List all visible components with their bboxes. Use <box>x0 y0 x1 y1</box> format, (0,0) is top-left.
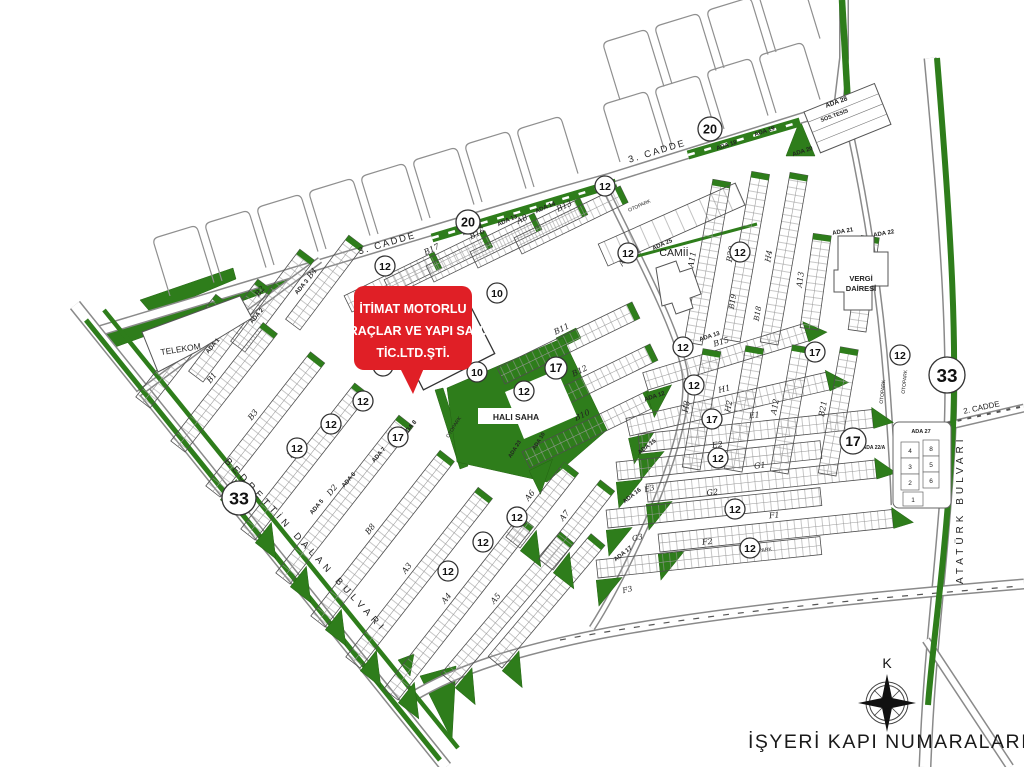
block-letter: G1 <box>754 461 766 471</box>
block-letter: F1 <box>768 510 781 520</box>
block-letter: F2 <box>701 537 714 547</box>
route-badge-12: 12 <box>321 414 341 434</box>
block-letter: H4 <box>763 249 774 263</box>
route-badge-number: 12 <box>677 342 689 354</box>
site-map: C2B2B4C1B1B3D1D2B8A3A4A5B14B17B16A8B13B1… <box>0 0 1024 767</box>
route-badge-number: 12 <box>894 350 906 362</box>
callout-text: TİC.LTD.ŞTİ. <box>376 345 449 360</box>
route-badge-12: 12 <box>890 345 910 365</box>
route-badge-17: 17 <box>388 427 408 447</box>
empty-parcel-comb <box>516 116 578 187</box>
route-badge-12: 12 <box>708 448 728 468</box>
route-badge-12: 12 <box>375 256 395 276</box>
ada27-cell-number: 8 <box>929 446 933 453</box>
block-letter: H1 <box>716 383 731 395</box>
empty-parcel-comb <box>654 13 716 84</box>
route-badge-12: 12 <box>684 375 704 395</box>
route-badge-12: 12 <box>287 438 307 458</box>
route-badge-number: 17 <box>809 347 821 359</box>
route-badge-number: 12 <box>599 181 611 193</box>
route-badge-20: 20 <box>698 117 722 141</box>
route-badge-17: 17 <box>545 357 567 379</box>
route-badge-number: 12 <box>622 248 634 260</box>
row-green-triangle <box>892 505 914 528</box>
highlight-callout: İTİMAT MOTORLUARAÇLAR VE YAPI SAN.TİC.LT… <box>340 286 487 394</box>
route-badge-10: 10 <box>487 283 507 303</box>
map-label: 3. CADDE <box>357 230 417 258</box>
route-badge-12: 12 <box>438 561 458 581</box>
route-badge-12: 12 <box>618 243 638 263</box>
route-badge-number: 12 <box>734 247 746 259</box>
route-badge-33: 33 <box>222 481 256 515</box>
map-label: ADA 27 <box>911 429 930 435</box>
empty-parcel-comb <box>204 210 266 281</box>
road-label-ataturk: ATATÜRK BULVARI <box>954 435 966 584</box>
empty-parcel-comb <box>360 163 422 234</box>
route-badge-12: 12 <box>740 538 760 558</box>
route-badge-12: 12 <box>507 507 527 527</box>
route-badge-number: 17 <box>550 363 563 375</box>
route-badge-number: 12 <box>379 261 391 273</box>
route-badge-17: 17 <box>840 428 866 454</box>
route-badge-number: 12 <box>744 543 756 555</box>
route-badge-number: 12 <box>729 504 741 516</box>
map-label: HALI SAHA <box>493 412 539 422</box>
ada27-cell-number: 4 <box>908 448 912 455</box>
route-badge-number: 20 <box>703 123 717 137</box>
empty-parcel-comb <box>706 0 768 68</box>
map-label: ADA 22 <box>873 229 895 239</box>
ada27-cell-number: 3 <box>908 464 912 471</box>
ada27-cell-number: 2 <box>908 480 912 487</box>
route-badge-number: 12 <box>511 512 523 524</box>
map-label: B18 <box>752 305 764 323</box>
route-badge-12: 12 <box>725 499 745 519</box>
callout-text: İTİMAT MOTORLU <box>359 301 466 316</box>
block-letter: G2 <box>706 487 718 497</box>
empty-parcel-comb <box>602 29 664 100</box>
route-badge-number: 33 <box>229 488 249 508</box>
empty-parcel-comb <box>758 0 820 52</box>
route-badge-12: 12 <box>514 381 534 401</box>
map-label: VERGİ <box>849 274 872 283</box>
route-badge-number: 10 <box>471 367 483 379</box>
empty-parcel-comb <box>256 194 318 265</box>
map-label: OTOPARK <box>901 369 910 394</box>
route-badge-12: 12 <box>353 391 373 411</box>
route-badge-17: 17 <box>805 342 825 362</box>
route-badge-number: 12 <box>477 537 489 549</box>
map-page: C2B2B4C1B1B3D1D2B8A3A4A5B14B17B16A8B13B1… <box>0 0 1024 767</box>
ada28-block <box>804 84 891 153</box>
ada27-cell-number: 5 <box>929 462 933 469</box>
route-badge-number: 12 <box>518 386 530 398</box>
route-badge-number: 17 <box>845 434 860 449</box>
ada27-cell-number: 1 <box>911 497 915 504</box>
route-badge-number: 10 <box>491 288 503 300</box>
route-badge-number: 33 <box>936 366 957 387</box>
route-badge-17: 17 <box>702 409 722 429</box>
block-letter: A12 <box>769 398 781 416</box>
route-badge-number: 12 <box>712 453 724 465</box>
empty-parcel-comb <box>412 147 474 218</box>
route-badge-12: 12 <box>673 337 693 357</box>
route-badge-number: 17 <box>706 414 718 426</box>
block-letter: A13 <box>795 271 806 289</box>
compass-rose: K <box>858 655 916 732</box>
map-label: DAİRESİ <box>846 284 876 293</box>
route-badge-33: 33 <box>929 357 965 393</box>
map-label: F3 <box>620 584 633 595</box>
route-badge-number: 17 <box>392 432 404 444</box>
route-badge-12: 12 <box>730 242 750 262</box>
route-badge-number: 12 <box>357 396 369 408</box>
route-badge-number: 20 <box>461 216 475 230</box>
route-badge-20: 20 <box>456 210 480 234</box>
map-label: OTOPARK <box>627 198 652 214</box>
route-badge-number: 12 <box>325 419 337 431</box>
map-title: İŞYERİ KAPI NUMARALARI <box>748 730 1024 753</box>
empty-parcel-comb <box>308 178 370 249</box>
route-badge-number: 12 <box>291 443 303 455</box>
map-label: ADA 22/A <box>863 445 886 451</box>
route-badge-12: 12 <box>473 532 493 552</box>
callout-text: ARAÇLAR VE YAPI SAN. <box>340 324 487 338</box>
compass-north-label: K <box>882 655 892 671</box>
route-badge-12: 12 <box>595 176 615 196</box>
ada27-cell-number: 6 <box>929 478 933 485</box>
empty-parcel-comb <box>464 131 526 202</box>
map-label: ADA 21 <box>832 227 854 237</box>
route-badge-number: 12 <box>442 566 454 578</box>
route-badge-number: 12 <box>688 380 700 392</box>
map-label: CAMİİ <box>659 246 688 259</box>
